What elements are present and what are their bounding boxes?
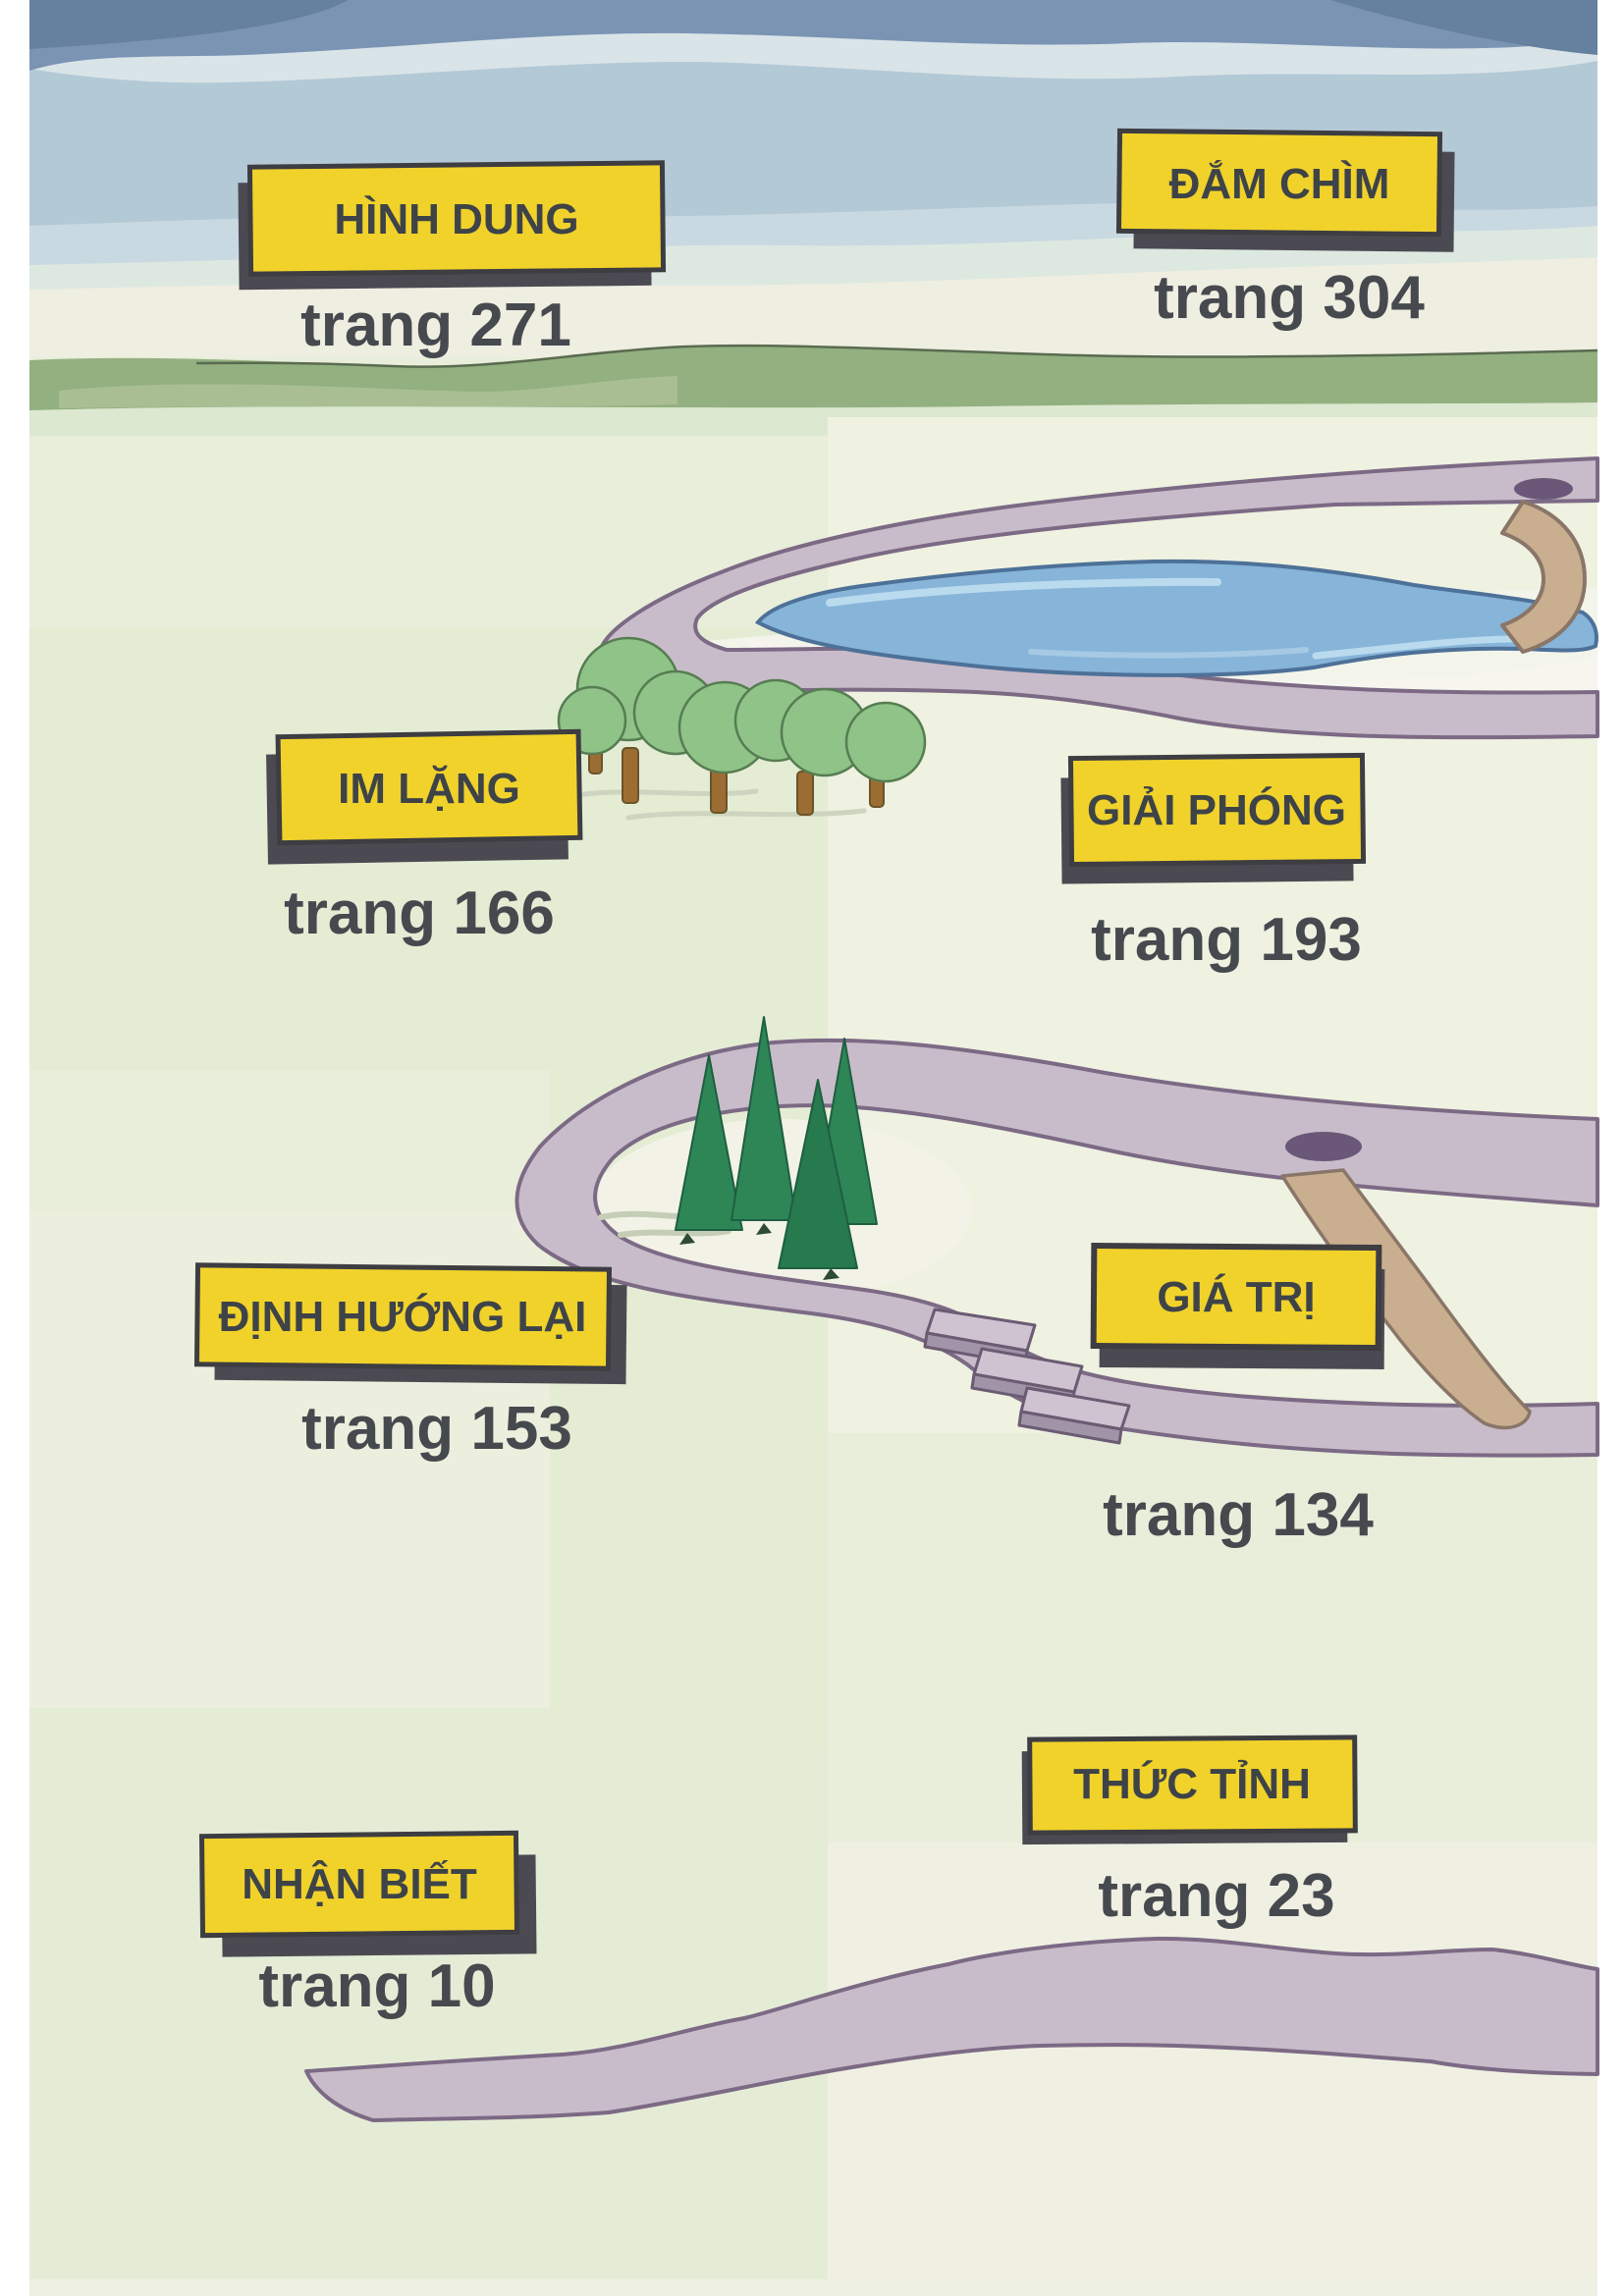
svg-text:IM LẶNG: IM LẶNG	[338, 764, 520, 813]
svg-text:HÌNH DUNG: HÌNH DUNG	[334, 194, 578, 243]
svg-text:ĐẮM CHÌM: ĐẮM CHÌM	[1169, 159, 1390, 208]
svg-text:trang 134: trang 134	[1103, 1481, 1374, 1549]
svg-text:trang 166: trang 166	[284, 880, 555, 947]
svg-text:GIẢI PHÓNG: GIẢI PHÓNG	[1087, 785, 1346, 834]
svg-text:trang 304: trang 304	[1154, 264, 1425, 332]
svg-text:NHẬN BIẾT: NHẬN BIẾT	[242, 1859, 477, 1908]
svg-text:trang 271: trang 271	[300, 292, 571, 359]
svg-text:THỨC TỈNH: THỨC TỈNH	[1073, 1759, 1311, 1808]
svg-text:GIÁ TRỊ: GIÁ TRỊ	[1157, 1272, 1315, 1321]
svg-text:trang 153: trang 153	[301, 1395, 572, 1463]
svg-text:trang 10: trang 10	[258, 1952, 495, 2020]
svg-text:ĐỊNH HƯỚNG LẠI: ĐỊNH HƯỚNG LẠI	[219, 1292, 587, 1341]
svg-text:trang 23: trang 23	[1098, 1862, 1334, 1930]
svg-text:trang 193: trang 193	[1091, 906, 1362, 974]
